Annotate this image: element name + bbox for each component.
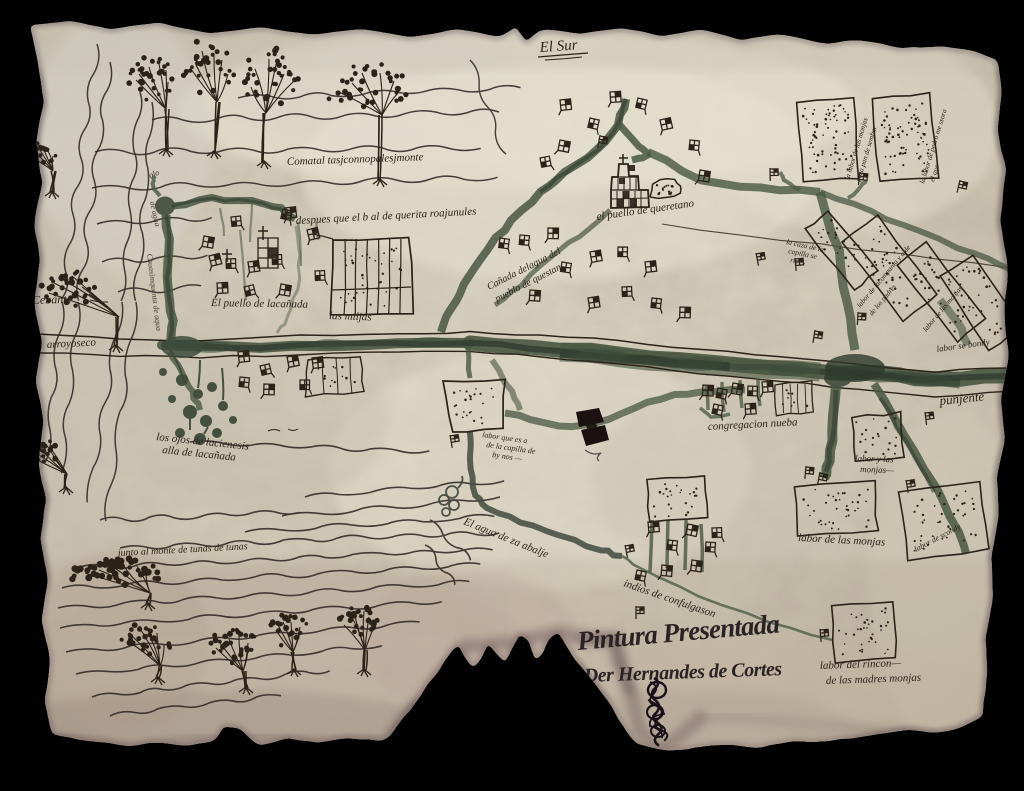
svg-text:El puello de lacañada: El puello de lacañada — [210, 297, 309, 311]
svg-text:labor y las: labor y las — [855, 453, 894, 464]
svg-text:monjas—: monjas— — [860, 464, 895, 475]
svg-text:Cebante: Cebante — [32, 292, 73, 307]
svg-text:El Sur: El Sur — [538, 37, 578, 56]
svg-text:las miljas: las miljas — [329, 310, 372, 323]
